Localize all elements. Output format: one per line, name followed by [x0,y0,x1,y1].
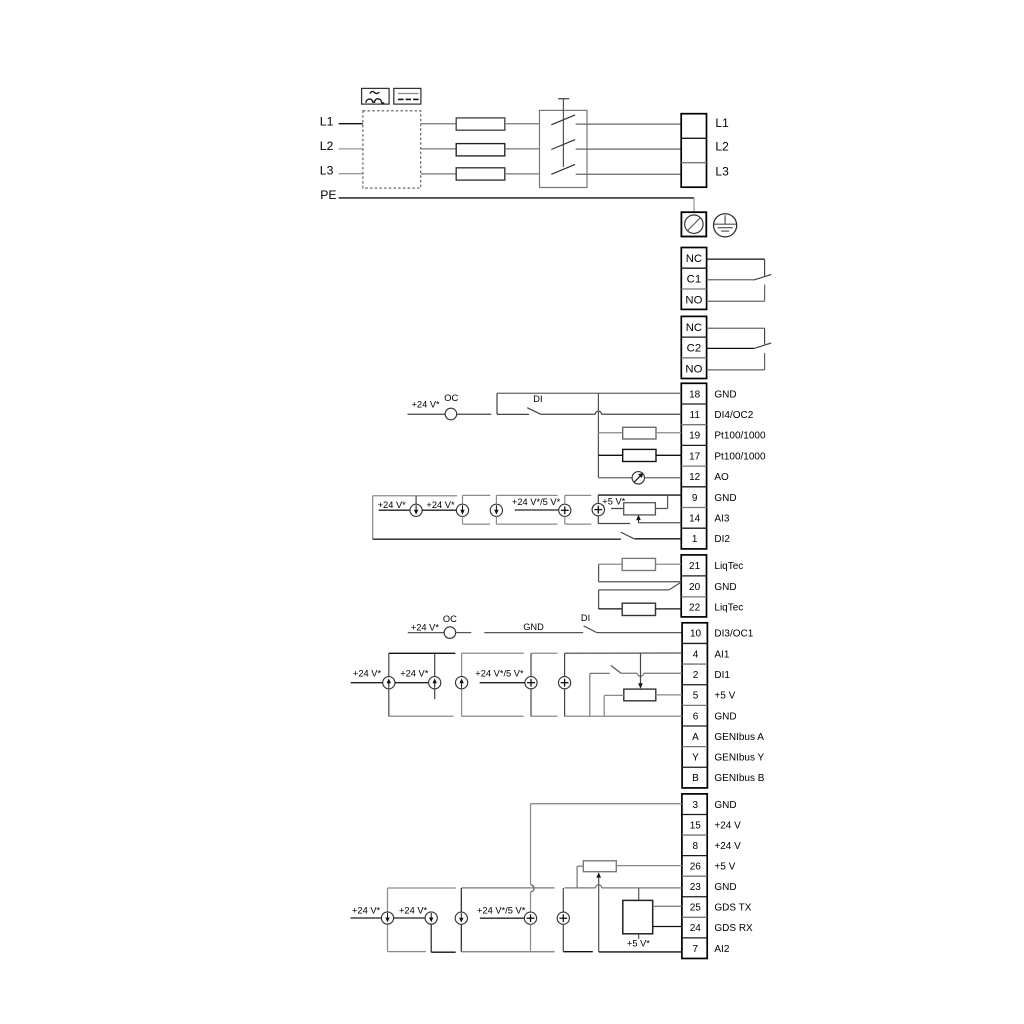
svg-text:6: 6 [693,711,699,722]
svg-text:4: 4 [693,649,699,660]
svg-text:PE: PE [320,188,336,202]
svg-text:AI3: AI3 [714,513,729,524]
svg-text:21: 21 [689,561,701,572]
svg-text:+24 V: +24 V [714,841,741,852]
svg-text:23: 23 [690,882,702,893]
svg-text:Y: Y [692,753,699,764]
svg-text:LiqTec: LiqTec [714,603,743,614]
svg-text:AI1: AI1 [714,649,729,660]
svg-text:L2: L2 [715,140,729,154]
svg-text:LiqTec: LiqTec [714,561,743,572]
svg-text:DI4/OC2: DI4/OC2 [714,410,753,421]
svg-text:+24 V*/5 V*: +24 V*/5 V* [477,906,526,916]
svg-text:7: 7 [693,944,699,955]
svg-text:19: 19 [689,431,701,442]
svg-text:+5 V: +5 V [714,861,735,872]
svg-text:+24 V*: +24 V* [353,668,382,678]
svg-text:L2: L2 [320,139,334,153]
svg-text:DI: DI [533,394,542,404]
svg-text:+24 V*: +24 V* [400,668,429,678]
svg-text:AO: AO [714,472,729,483]
svg-text:+5 V*: +5 V* [627,939,650,949]
svg-text:8: 8 [693,841,699,852]
svg-text:DI1: DI1 [714,670,730,681]
svg-text:11: 11 [690,410,701,421]
svg-text:2: 2 [693,670,699,681]
svg-text:+24 V*: +24 V* [411,623,440,633]
svg-text:L3: L3 [320,164,334,178]
svg-text:15: 15 [690,820,702,831]
svg-text:GENIbus A: GENIbus A [714,732,764,743]
svg-text:L1: L1 [715,116,729,130]
svg-text:AI2: AI2 [714,944,729,955]
svg-text:DI: DI [581,613,590,623]
svg-text:+24 V: +24 V [714,820,741,831]
svg-text:+5 V*: +5 V* [602,497,625,507]
svg-text:+24 V*: +24 V* [352,906,381,916]
svg-text:3: 3 [693,800,699,811]
svg-text:L1: L1 [320,115,334,129]
svg-text:14: 14 [689,513,701,524]
svg-text:GND: GND [714,493,736,504]
svg-text:+24 V*: +24 V* [412,400,441,410]
svg-text:GDS RX: GDS RX [714,923,753,934]
svg-text:24: 24 [690,923,702,934]
svg-text:GND: GND [523,622,544,632]
svg-text:25: 25 [690,903,702,914]
svg-text:26: 26 [690,861,702,872]
svg-text:A: A [692,732,699,743]
svg-text:22: 22 [689,603,701,614]
svg-text:+24 V*: +24 V* [426,500,455,510]
svg-text:C2: C2 [687,343,701,355]
svg-text:DI3/OC1: DI3/OC1 [714,629,753,640]
svg-text:12: 12 [689,472,701,483]
svg-text:GND: GND [714,800,736,811]
svg-text:17: 17 [689,451,701,462]
svg-text:GND: GND [714,389,736,400]
svg-text:OC: OC [443,614,457,624]
svg-text:GND: GND [714,582,736,593]
svg-text:GENIbus Y: GENIbus Y [714,753,764,764]
svg-text:L3: L3 [715,165,729,179]
svg-text:18: 18 [689,389,701,400]
svg-text:1: 1 [692,534,698,545]
svg-text:NO: NO [685,363,702,375]
svg-text:DI2: DI2 [714,534,730,545]
svg-text:NC: NC [686,253,702,265]
svg-text:9: 9 [692,493,698,504]
svg-text:GDS TX: GDS TX [714,903,751,914]
svg-text:+24 V*/5 V*: +24 V*/5 V* [475,668,524,678]
svg-text:C1: C1 [687,274,701,286]
svg-text:B: B [692,773,699,784]
svg-text:+5 V: +5 V [714,691,735,702]
svg-text:5: 5 [693,691,699,702]
svg-text:GENIbus B: GENIbus B [714,773,764,784]
svg-text:GND: GND [714,882,736,893]
svg-text:+24 V*: +24 V* [378,500,407,510]
svg-text:Pt100/1000: Pt100/1000 [714,431,766,442]
svg-text:NC: NC [686,322,702,334]
svg-text:20: 20 [689,582,701,593]
svg-text:OC: OC [444,393,458,403]
svg-text:+24 V*/5 V*: +24 V*/5 V* [512,497,561,507]
svg-text:Pt100/1000: Pt100/1000 [714,451,766,462]
svg-text:+24 V*: +24 V* [399,906,428,916]
svg-text:GND: GND [714,711,736,722]
svg-text:NO: NO [685,295,702,307]
svg-text:10: 10 [690,629,702,640]
